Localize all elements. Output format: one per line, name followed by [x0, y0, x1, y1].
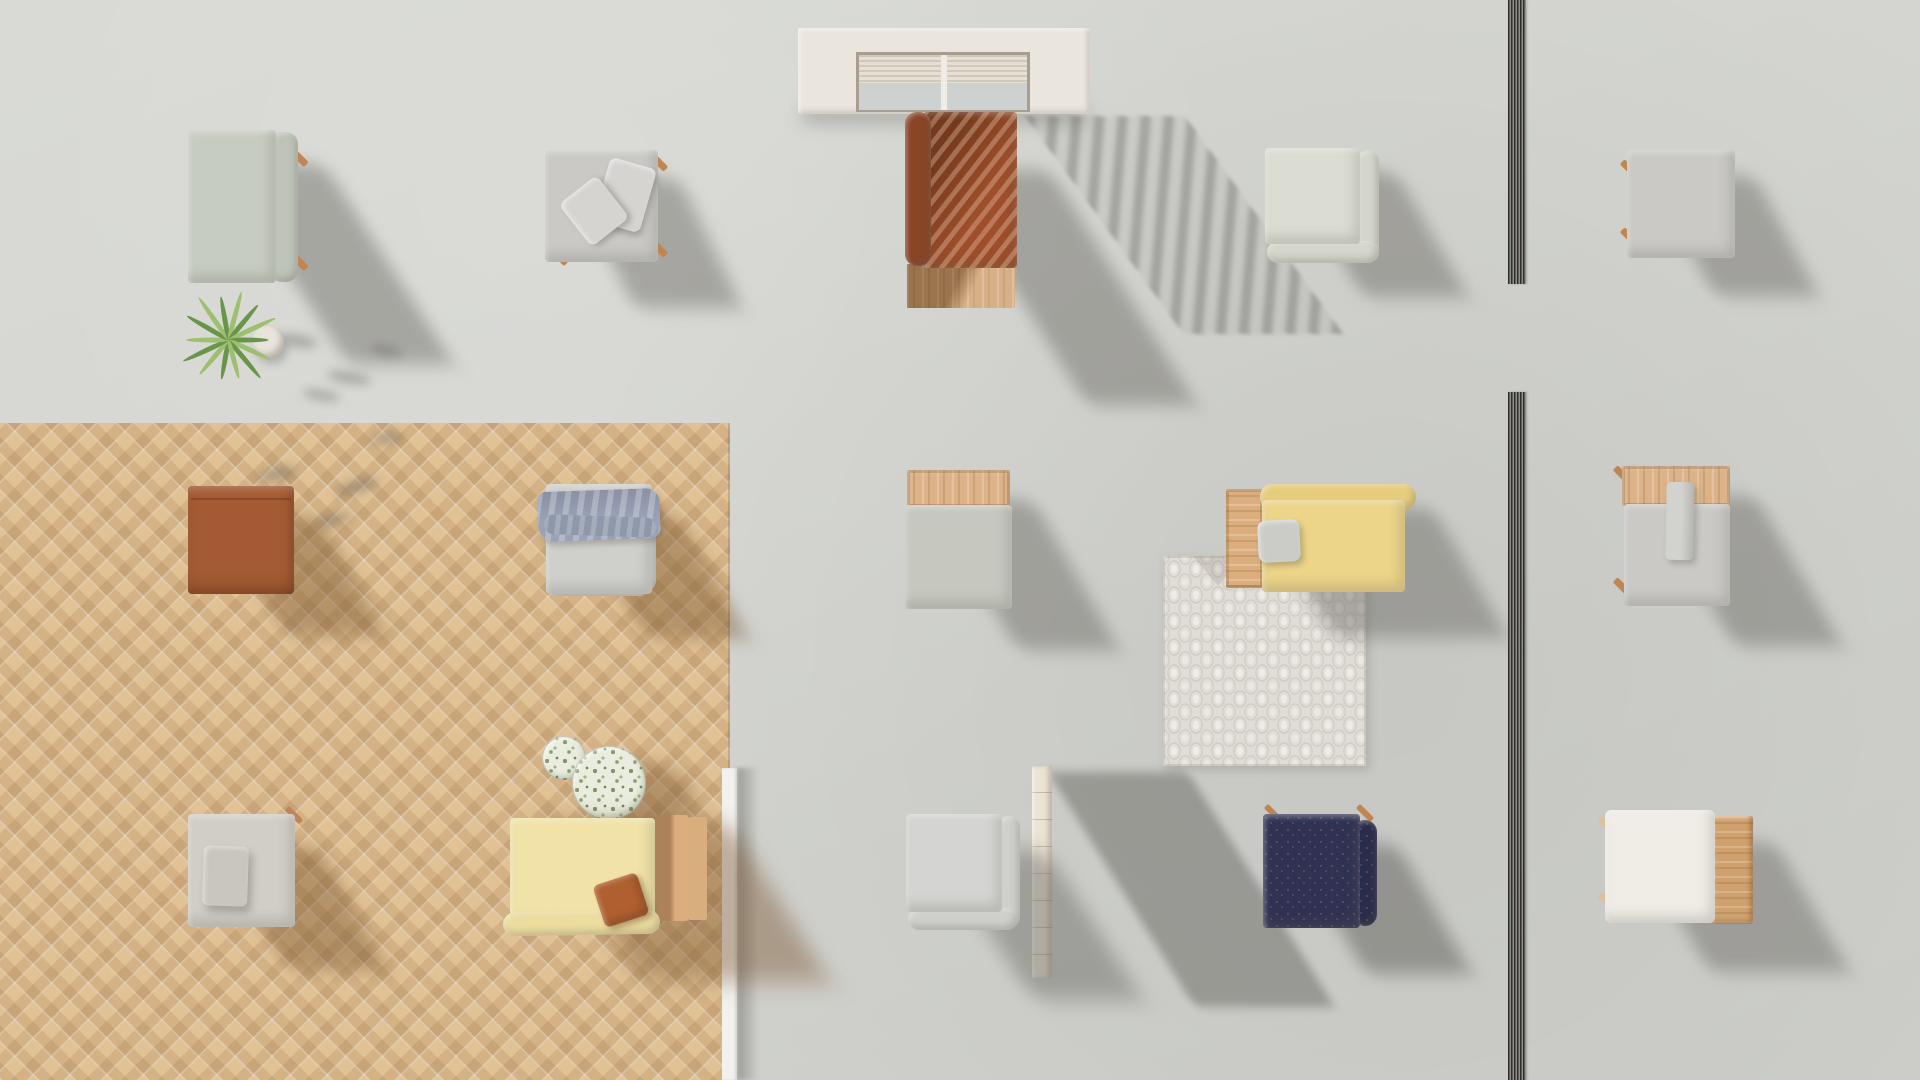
chair-back-bottom: [1267, 241, 1379, 263]
chair-seat: [1263, 814, 1360, 928]
floor-track-bottom: [1508, 392, 1526, 1080]
rust-sofa: [905, 112, 1017, 308]
gray-chair-with-wood-tray: [1620, 466, 1734, 610]
gray-ottoman: [1627, 150, 1737, 260]
white-ottoman-with-wood-table: [1605, 810, 1755, 928]
rust-leather-cube: [188, 486, 295, 595]
showroom-scene: [0, 0, 1920, 1080]
yellow-daybed-with-side-table: [1224, 478, 1416, 596]
pale-yellow-daybed: [500, 782, 710, 937]
door-glass-left: [859, 83, 941, 110]
wood-arm: [688, 817, 707, 920]
sofa-seat-light-stripes: [923, 112, 1017, 268]
gray-corner-chair: [906, 814, 1016, 932]
sage-corner-chair: [1265, 148, 1379, 264]
gray-chair-with-blue-throw: [546, 484, 656, 596]
sage-ottoman-with-wood-tray: [905, 470, 1013, 610]
wood-tray: [907, 470, 1010, 507]
potted-plant: [176, 282, 286, 392]
gray-pillow: [1257, 519, 1301, 563]
ottoman-cushion: [905, 505, 1012, 609]
floor-track-top: [1508, 0, 1526, 284]
door-blind-right: [947, 55, 1027, 83]
chair-seat: [1265, 148, 1360, 244]
navy-corner-chair: [1263, 814, 1377, 932]
cube-top: [188, 486, 294, 594]
cube-seam: [191, 498, 291, 500]
door-blind-left: [859, 55, 941, 83]
pillow: [202, 845, 249, 907]
sofa-back-bolster: [905, 112, 931, 266]
door-glass-right: [947, 83, 1027, 110]
wood-side-table: [1711, 816, 1753, 924]
back-cushion-piece: [1665, 482, 1694, 560]
sofa-base-shade: [907, 264, 1015, 308]
bench-seat: [188, 130, 276, 283]
side-table: [655, 815, 688, 921]
gray-daybed-with-pillows: [545, 150, 660, 264]
blue-throw-fold: [544, 514, 657, 538]
ottoman-top: [1627, 150, 1735, 258]
beige-ottoman-with-pillow: [188, 814, 296, 928]
sage-bench: [188, 130, 300, 286]
patio-door: [798, 28, 1090, 114]
ottoman-cushion: [1605, 810, 1715, 923]
chair-seat: [906, 814, 1002, 912]
